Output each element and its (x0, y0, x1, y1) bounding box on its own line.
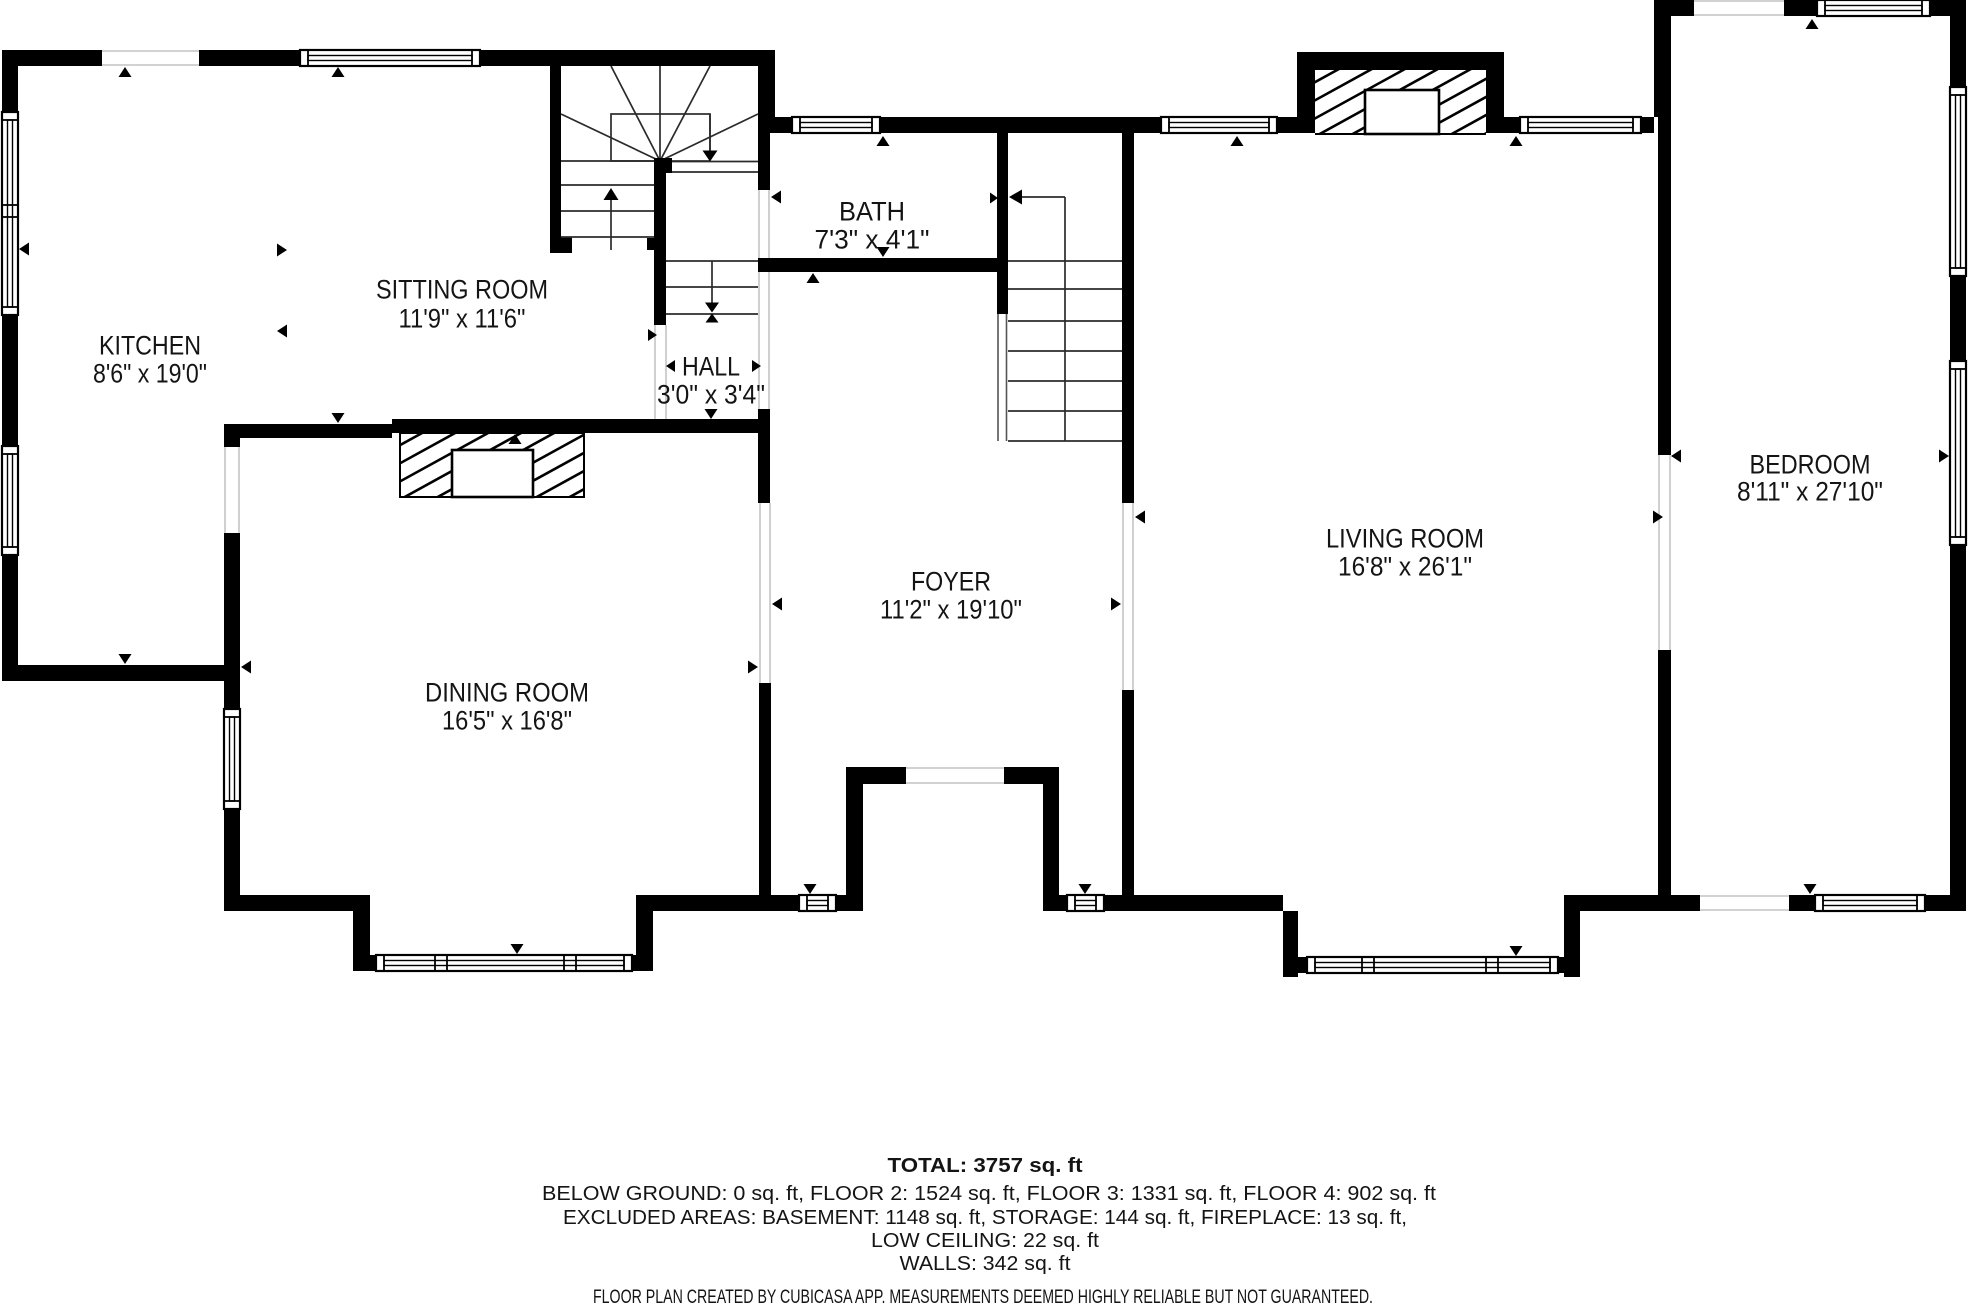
svg-text:16'5" x 16'8": 16'5" x 16'8" (442, 706, 572, 736)
svg-text:KITCHEN: KITCHEN (99, 331, 201, 361)
svg-text:7'3" x 4'1": 7'3" x 4'1" (815, 225, 930, 255)
svg-text:TOTAL: 3757 sq. ft: TOTAL: 3757 sq. ft (888, 1155, 1083, 1177)
svg-text:BELOW GROUND: 0 sq. ft, FLOOR: BELOW GROUND: 0 sq. ft, FLOOR 2: 1524 sq… (542, 1183, 1436, 1205)
svg-text:LIVING ROOM: LIVING ROOM (1326, 524, 1484, 554)
svg-text:HALL: HALL (682, 352, 740, 382)
svg-text:8'6" x 19'0": 8'6" x 19'0" (93, 359, 207, 389)
svg-text:LOW CEILING: 22 sq. ft: LOW CEILING: 22 sq. ft (871, 1230, 1099, 1252)
svg-text:FOYER: FOYER (911, 567, 991, 597)
svg-text:11'9" x 11'6": 11'9" x 11'6" (399, 304, 526, 334)
svg-text:BATH: BATH (839, 197, 905, 227)
svg-text:DINING ROOM: DINING ROOM (425, 678, 589, 708)
svg-text:16'8" x 26'1": 16'8" x 26'1" (1338, 552, 1472, 582)
svg-text:SITTING ROOM: SITTING ROOM (376, 275, 548, 305)
svg-text:8'11" x 27'10": 8'11" x 27'10" (1737, 477, 1883, 507)
svg-text:3'0" x 3'4": 3'0" x 3'4" (657, 380, 765, 410)
svg-text:FLOOR PLAN CREATED BY CUBICASA: FLOOR PLAN CREATED BY CUBICASA APP, MEAS… (593, 1287, 1373, 1303)
svg-text:WALLS: 342 sq. ft: WALLS: 342 sq. ft (900, 1253, 1071, 1275)
svg-text:11'2" x 19'10": 11'2" x 19'10" (880, 595, 1022, 625)
svg-text:EXCLUDED AREAS: BASEMENT: 1148: EXCLUDED AREAS: BASEMENT: 1148 sq. ft, S… (563, 1207, 1407, 1229)
svg-text:BEDROOM: BEDROOM (1750, 450, 1871, 480)
